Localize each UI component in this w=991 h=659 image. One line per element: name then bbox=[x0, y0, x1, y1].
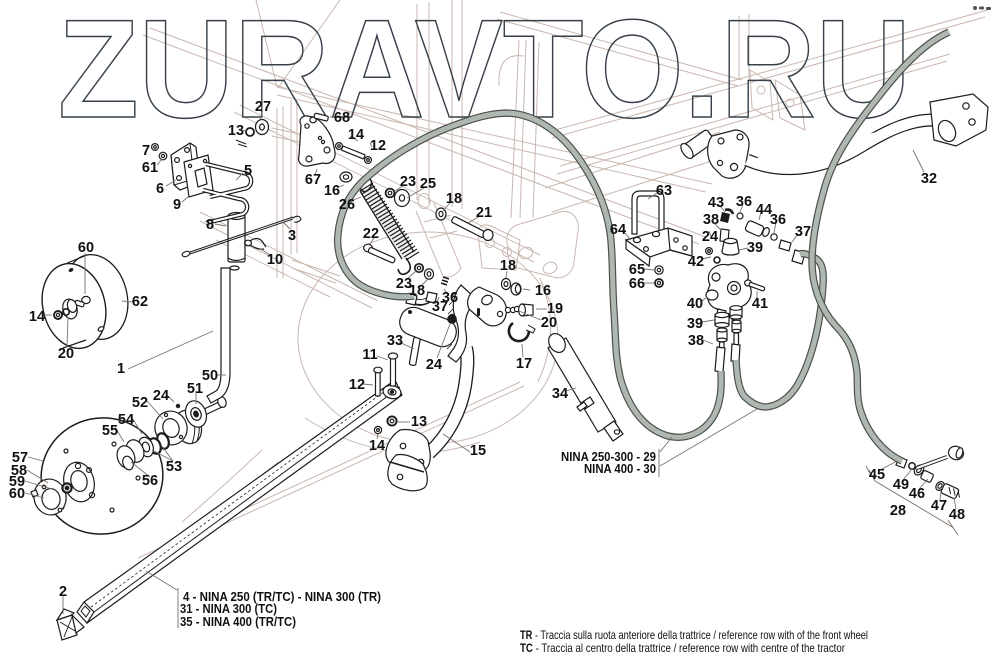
svg-text:34: 34 bbox=[552, 386, 568, 402]
svg-text:45: 45 bbox=[869, 467, 885, 483]
svg-text:15: 15 bbox=[470, 443, 486, 459]
svg-text:53: 53 bbox=[166, 459, 182, 475]
svg-text:22: 22 bbox=[363, 226, 379, 242]
svg-text:39: 39 bbox=[687, 316, 703, 332]
svg-text:60: 60 bbox=[9, 486, 25, 502]
svg-text:49: 49 bbox=[893, 477, 909, 493]
svg-text:68: 68 bbox=[334, 110, 350, 126]
svg-text:55: 55 bbox=[102, 423, 118, 439]
svg-text:7: 7 bbox=[142, 143, 150, 159]
svg-text:42: 42 bbox=[688, 254, 704, 270]
svg-text:18: 18 bbox=[500, 258, 516, 274]
svg-text:18: 18 bbox=[446, 191, 462, 207]
svg-text:33: 33 bbox=[387, 333, 403, 349]
svg-text:36: 36 bbox=[770, 212, 786, 228]
svg-text:3: 3 bbox=[288, 228, 296, 244]
svg-text:14: 14 bbox=[29, 309, 45, 325]
svg-text:38: 38 bbox=[703, 212, 719, 228]
svg-text:TR - Traccia sulla ruota anter: TR - Traccia sulla ruota anteriore della… bbox=[520, 628, 868, 642]
svg-text:24: 24 bbox=[426, 357, 442, 373]
svg-text:14: 14 bbox=[348, 127, 364, 143]
svg-text:13: 13 bbox=[411, 414, 427, 430]
svg-text:40: 40 bbox=[687, 296, 703, 312]
svg-text:66: 66 bbox=[629, 276, 645, 292]
svg-text:41: 41 bbox=[752, 296, 768, 312]
svg-text:61: 61 bbox=[142, 160, 158, 176]
svg-text:16: 16 bbox=[324, 183, 340, 199]
svg-text:36: 36 bbox=[736, 194, 752, 210]
svg-text:26: 26 bbox=[339, 197, 355, 213]
svg-text:TC - Traccia al centro della t: TC - Traccia al centro della trattrice /… bbox=[520, 641, 845, 655]
svg-text:10: 10 bbox=[267, 252, 283, 268]
svg-text:1: 1 bbox=[117, 361, 125, 377]
svg-text:63: 63 bbox=[656, 183, 672, 199]
svg-text:9: 9 bbox=[173, 197, 181, 213]
svg-text:12: 12 bbox=[349, 377, 365, 393]
svg-text:21: 21 bbox=[476, 205, 492, 221]
svg-text:NINA 400 - 30: NINA 400 - 30 bbox=[584, 461, 656, 476]
svg-text:48: 48 bbox=[949, 507, 965, 523]
svg-text:64: 64 bbox=[610, 222, 626, 238]
svg-text:38: 38 bbox=[688, 333, 704, 349]
svg-text:35 - NINA 400 (TR/TC): 35 - NINA 400 (TR/TC) bbox=[180, 614, 296, 629]
svg-text:23: 23 bbox=[400, 174, 416, 190]
svg-text:24: 24 bbox=[153, 388, 169, 404]
svg-text:18: 18 bbox=[409, 283, 425, 299]
svg-text:20: 20 bbox=[58, 346, 74, 362]
svg-text:11: 11 bbox=[362, 347, 377, 363]
svg-text:28: 28 bbox=[890, 503, 906, 519]
svg-text:8: 8 bbox=[206, 217, 214, 233]
svg-text:25: 25 bbox=[420, 176, 436, 192]
svg-text:39: 39 bbox=[747, 240, 763, 256]
svg-text:37: 37 bbox=[432, 299, 448, 315]
svg-text:54: 54 bbox=[118, 412, 134, 428]
svg-text:51: 51 bbox=[187, 381, 203, 397]
svg-text:17: 17 bbox=[516, 356, 532, 372]
svg-text:20: 20 bbox=[541, 315, 557, 331]
svg-text:50: 50 bbox=[202, 368, 218, 384]
svg-text:12: 12 bbox=[370, 138, 386, 154]
svg-text:52: 52 bbox=[132, 395, 148, 411]
svg-text:5: 5 bbox=[244, 163, 252, 179]
svg-text:62: 62 bbox=[132, 294, 148, 310]
svg-text:32: 32 bbox=[921, 171, 937, 187]
svg-text:60: 60 bbox=[78, 240, 94, 256]
svg-text:13: 13 bbox=[228, 123, 244, 139]
svg-text:67: 67 bbox=[305, 172, 321, 188]
svg-text:46: 46 bbox=[909, 486, 925, 502]
svg-text:56: 56 bbox=[142, 473, 158, 489]
svg-text:6: 6 bbox=[156, 181, 164, 197]
svg-text:16: 16 bbox=[535, 283, 551, 299]
svg-text:47: 47 bbox=[931, 498, 947, 514]
svg-text:2: 2 bbox=[59, 584, 67, 600]
svg-text:ZURAVTO.RU: ZURAVTO.RU bbox=[58, 0, 911, 147]
svg-text:27: 27 bbox=[255, 99, 271, 115]
svg-text:24: 24 bbox=[702, 229, 718, 245]
svg-text:14: 14 bbox=[369, 438, 385, 454]
svg-text:43: 43 bbox=[708, 195, 724, 211]
svg-text:37: 37 bbox=[795, 224, 811, 240]
